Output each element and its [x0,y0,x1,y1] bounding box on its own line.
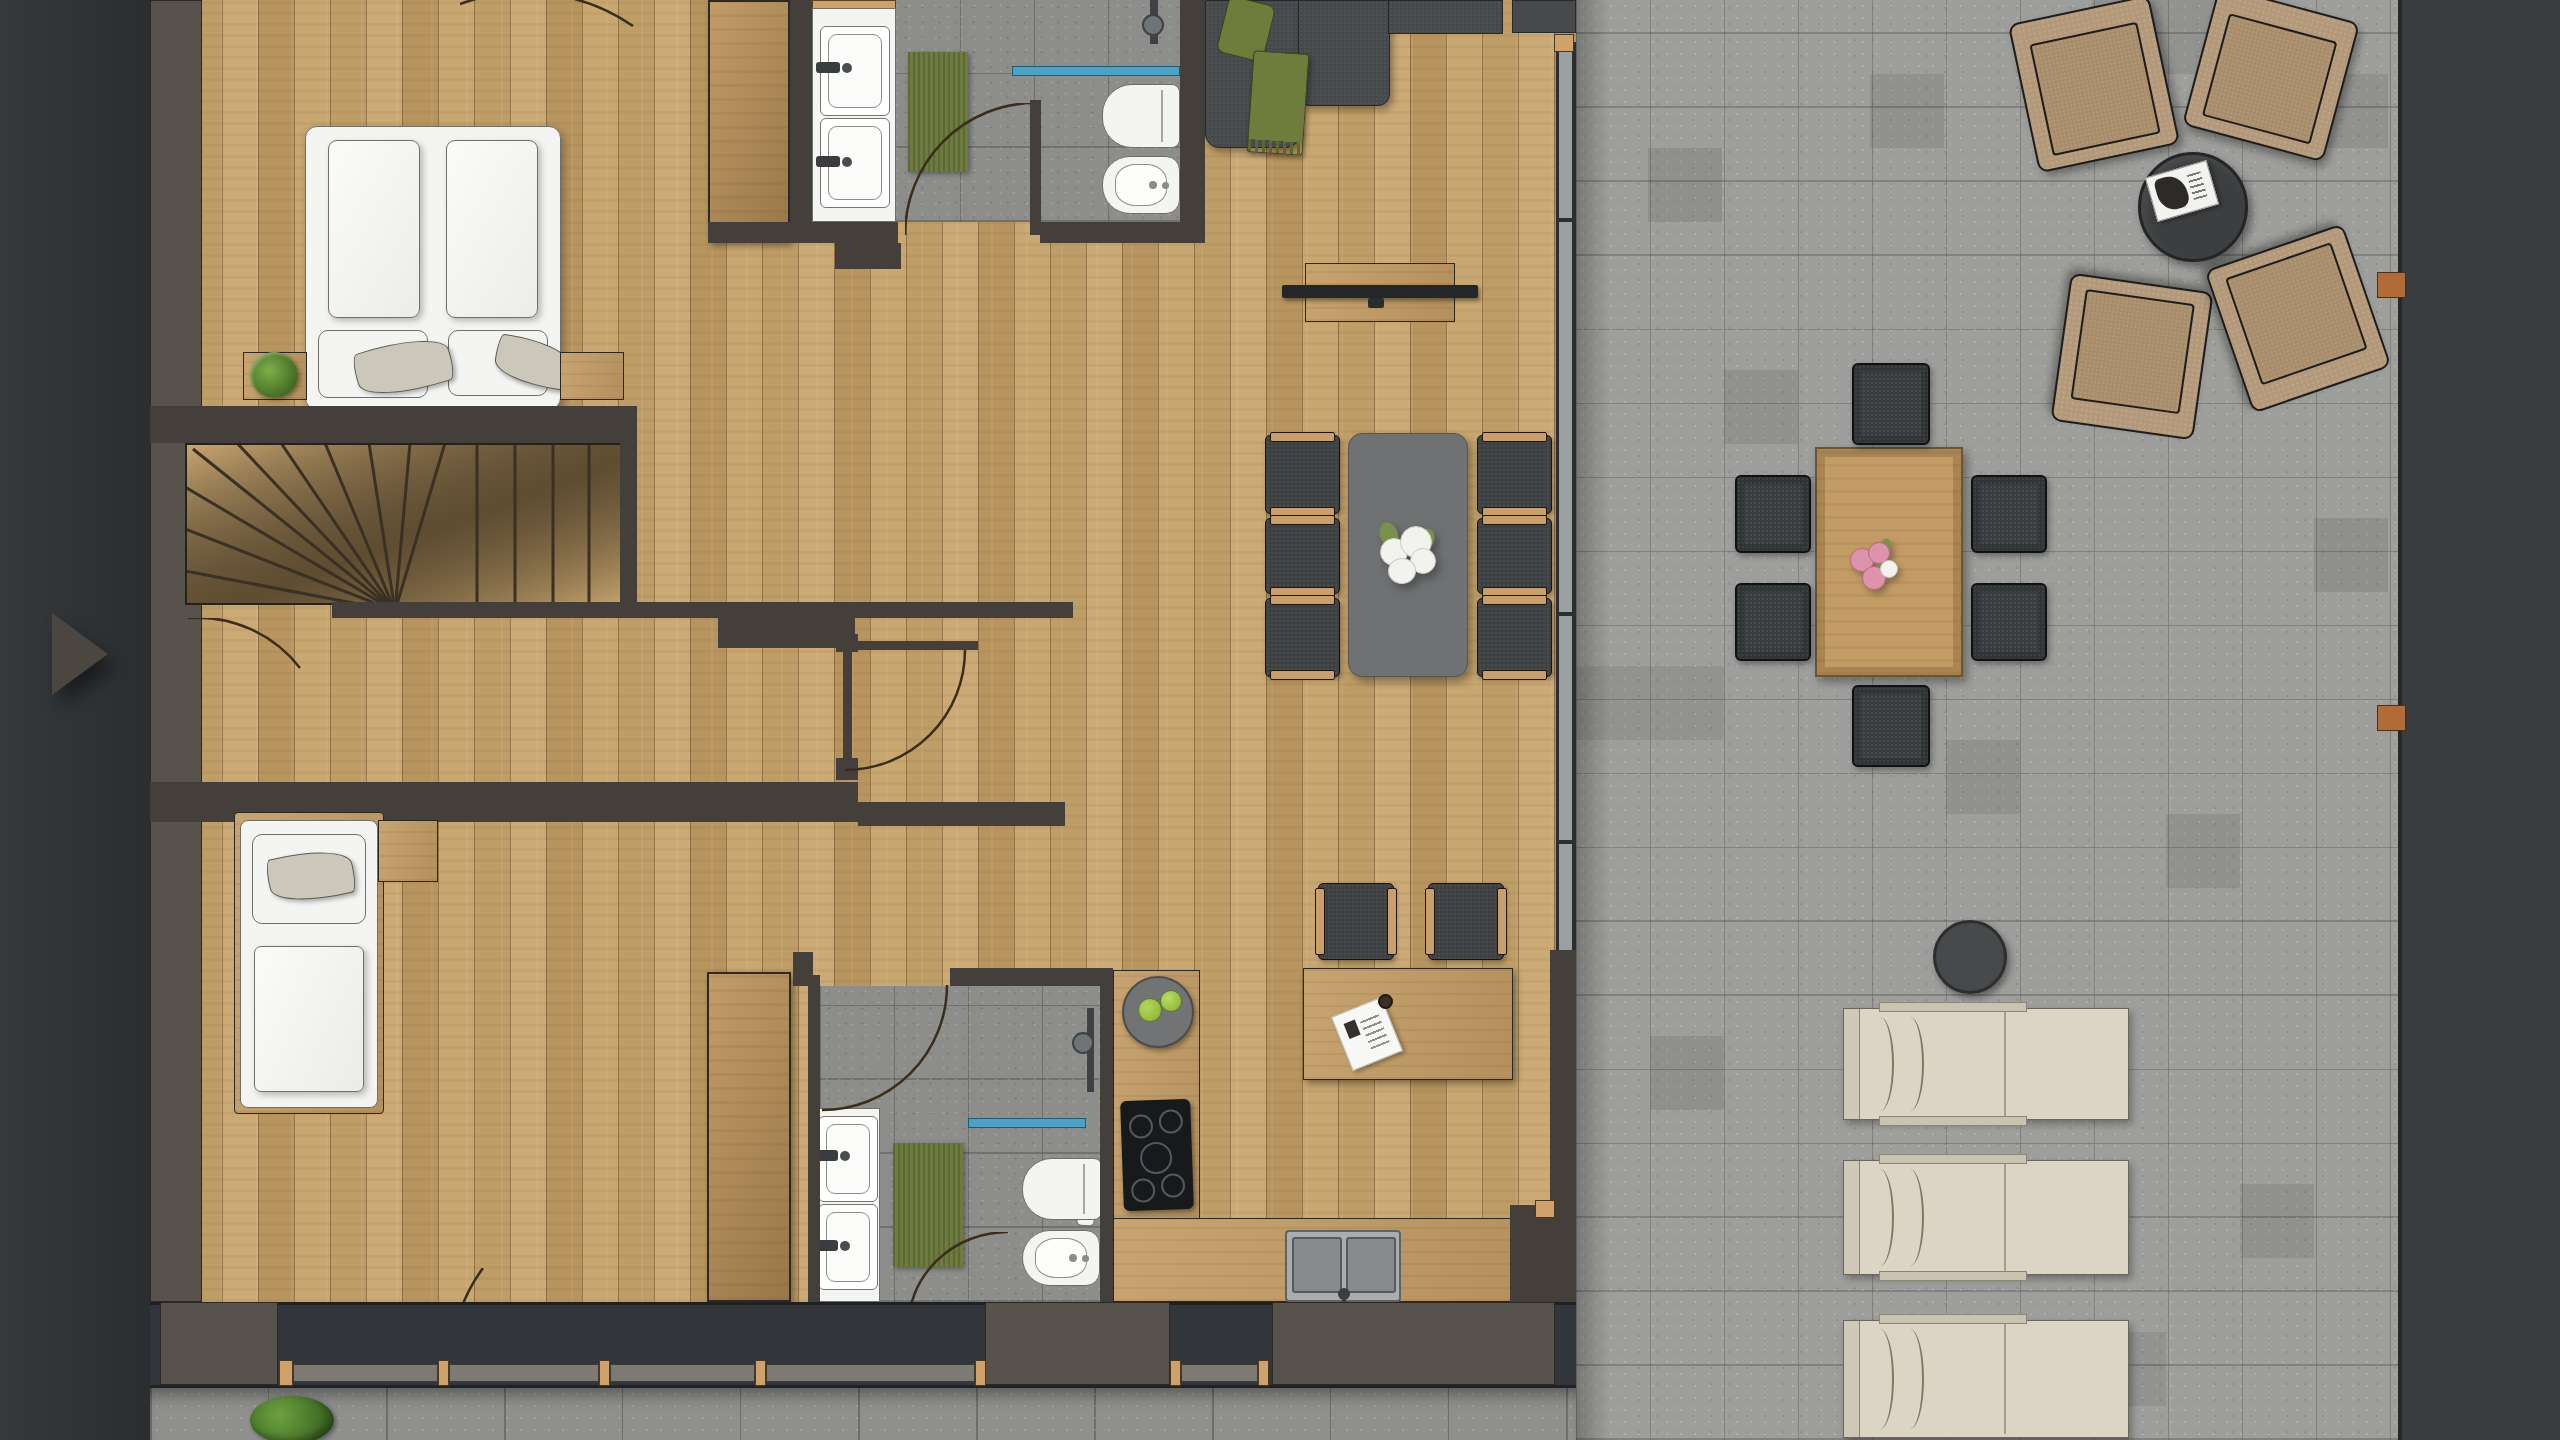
bidet [1102,156,1180,214]
tv [1282,285,1478,298]
window-post [755,1360,766,1386]
wall-segment [790,0,812,243]
dining-chair [1265,518,1340,594]
wall-pillar [1272,1302,1555,1385]
stair-rail [332,602,1073,618]
wall-segment [1100,968,1113,1302]
window-strip [449,1364,599,1382]
duvet [446,140,538,318]
shower-head [1072,1032,1094,1054]
right-wall-band [2402,0,2560,1440]
faucet-knob [840,1151,850,1161]
dining-chair [1265,598,1340,677]
door-post [793,952,813,986]
patio-tile-dark [1870,74,1944,148]
patio-tile-dark [2314,518,2388,592]
wall-segment [150,406,637,443]
flower-centerpiece [1378,520,1438,584]
sun-lounger [1843,1160,2129,1275]
door-header [850,641,978,650]
staircase [185,443,622,605]
wall-segment [1180,0,1205,243]
window-sill-block [1535,1200,1555,1218]
outdoor-armchair [2008,0,2180,173]
dining-chair [1477,435,1552,514]
desk-chair [1318,883,1394,960]
shower-head [1142,14,1164,36]
wall-segment [718,617,855,648]
dining-chair [1477,598,1552,677]
faucet-knob [840,1241,850,1251]
side-table [1933,920,2007,994]
cabinet [1512,0,1576,33]
faucet [816,62,840,73]
toilet [1102,84,1180,148]
walkway [150,1388,1576,1440]
outdoor-dining-chair [1735,583,1811,661]
desk-chair [1428,883,1504,960]
wall-segment [950,968,1105,986]
window-post [975,1360,986,1386]
window-post [1170,1360,1181,1386]
patio-tile-dark [1648,148,1722,222]
patio-tile-dark [1576,666,1724,740]
window-frame-tick [1556,612,1576,616]
dining-chair [1477,518,1552,594]
sun-lounger [1843,1008,2129,1120]
window-strip [293,1364,438,1382]
patio-tile-dark [2240,1184,2314,1258]
window-frame-tick [1556,218,1576,222]
patio-tile-dark [1724,370,1798,444]
outdoor-dining-chair [1971,583,2047,661]
faucet [816,156,840,167]
door-swing-arc [845,650,967,772]
wardrobe [707,972,791,1302]
shower-glass [968,1118,1086,1128]
flower-centerpiece [1850,538,1898,590]
toilet [1022,1158,1102,1220]
wardrobe [708,0,790,243]
wall-segment [1040,222,1205,243]
sun-lounger [1843,1320,2129,1438]
left-exterior-ground [0,0,150,1440]
bush [250,1396,334,1440]
outdoor-dining-chair [1852,363,1930,445]
wall-segment [708,222,898,243]
patio-tile-dark [1946,740,2020,814]
tv-handle [1368,298,1384,308]
door-swing-arc [460,0,635,32]
duvet [328,140,420,318]
window-post [1258,1360,1269,1386]
wall-segment [858,802,1065,826]
door-swing-arc [905,103,1039,239]
door-leaf [1030,100,1041,235]
wall-segment [620,443,637,605]
nightstand [378,820,438,882]
potted-plant [250,352,298,398]
wood-clip [2377,272,2406,298]
patio-tile-dark [1650,1036,1724,1110]
duvet [254,946,364,1092]
patio-tile-dark [2166,814,2240,888]
door-swing-arc [188,618,303,673]
wall-segment [835,243,901,269]
door-swing-arc [822,985,949,1112]
outdoor-dining-chair [1971,475,2047,553]
window-strip [610,1364,755,1382]
window-post [599,1360,610,1386]
faucet-knob [842,63,852,73]
next-arrow-button[interactable] [52,613,108,695]
window-frame-tick [1556,840,1576,844]
window-post [279,1360,293,1386]
floor-plan-scene [0,0,2560,1440]
apple [1138,998,1162,1022]
shower-glass [1012,66,1180,76]
dining-chair [1265,435,1340,514]
outdoor-dining-chair [1735,475,1811,553]
window-strip [766,1364,975,1382]
wood-clip [2377,705,2406,731]
faucet-knob [842,157,852,167]
window-strip [1181,1364,1258,1382]
wall-segment [808,975,820,1302]
window-post [438,1360,449,1386]
apple [1160,990,1182,1012]
cup [1378,994,1393,1009]
throw-blanket [1247,50,1310,156]
bidet [1022,1230,1100,1286]
bed-ledge [560,352,624,400]
wall-pillar [985,1302,1170,1385]
wall-pillar [160,1302,278,1385]
window-sill-block [1554,34,1574,52]
outdoor-armchair [2050,273,2213,441]
kitchen-sink [1285,1230,1401,1302]
window-wall [1556,42,1576,950]
outdoor-dining-chair [1852,685,1930,767]
sofa [1388,0,1503,34]
cooktop [1120,1099,1194,1211]
sofa [1298,0,1390,106]
